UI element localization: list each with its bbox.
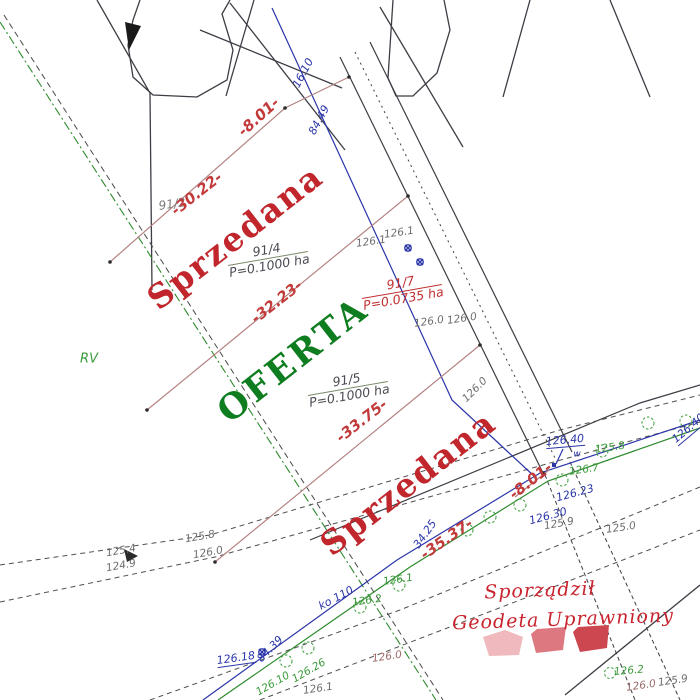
elevation-label: 126.1 (302, 682, 333, 697)
elevation-label: 126.0 (461, 376, 490, 405)
elevation-label: 126.0 (625, 679, 656, 694)
elevation-label: 126.2 (351, 594, 382, 609)
water-line-label: 16.10 (291, 57, 316, 90)
water-point-label: 126.18 (216, 650, 256, 668)
signature-line-2: Geodeta Uprawniony (452, 607, 674, 634)
elevation-label: 125.8 (184, 529, 215, 545)
map-labels: Sprzedana OFERTA Sprzedana 91/2 91/4 P=0… (0, 0, 700, 700)
dimension-label: -32.23- (249, 278, 305, 327)
land-use-code-label: RV (80, 353, 98, 366)
signature-line-1: Sporządził (484, 580, 596, 603)
water-line-label: 84.49 (307, 104, 332, 137)
elevation-label: 126.7 (568, 463, 599, 478)
elevation-label: 126.1 (383, 226, 414, 241)
dimension-label: -8.01- (507, 460, 555, 502)
water-marker-label: w (573, 451, 580, 460)
elevation-label: 126.0 (413, 315, 444, 330)
elevation-label: 125.9 (543, 516, 574, 532)
elevation-label: 126.1 (355, 235, 386, 250)
parcel-91-5-offer-label: OFERTA (211, 291, 374, 429)
cadastral-map: Sprzedana OFERTA Sprzedana 91/2 91/4 P=0… (0, 0, 700, 700)
elevation-label: 126.2 (614, 664, 645, 677)
dimension-label: -33.75- (334, 397, 390, 446)
dimension-label: -30.22- (169, 170, 225, 219)
dimension-label: -8.01- (236, 95, 283, 139)
water-point-label: 126.40 (545, 433, 584, 449)
elevation-label: 126.10 (254, 670, 291, 697)
elevation-label: 125.8 (594, 441, 625, 456)
elevation-label: 124.9 (105, 558, 136, 574)
water-point-label: 84.39 (255, 634, 285, 664)
elevation-label: 126.1 (382, 573, 413, 588)
elevation-label: 126.0 (446, 312, 477, 327)
parcel-91-7-id-area: 91/7 P=0.0735 ha (360, 270, 445, 312)
elevation-label: 125.9 (657, 674, 688, 689)
water-point-label: 126.23 (555, 483, 595, 504)
elevation-label: 126.26 (290, 657, 327, 684)
elevation-label: 125.0 (605, 521, 636, 536)
water-point-label: 126.40 (670, 412, 700, 447)
elevation-label: 126.0 (371, 650, 402, 665)
elevation-label: 126.0 (192, 545, 223, 561)
elevation-label: 125.4 (105, 543, 136, 559)
sewer-line-label: ko 110 (317, 584, 355, 611)
